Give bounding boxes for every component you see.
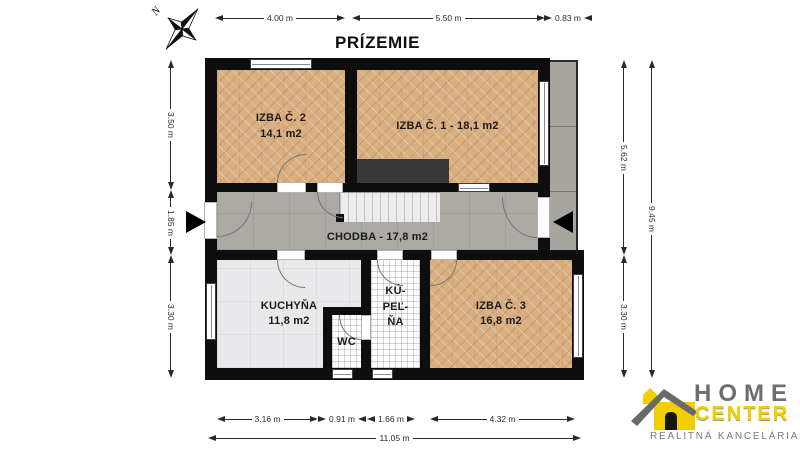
room-chodba-label: CHODBA - 17,8 m2 (217, 228, 538, 248)
north-compass-icon: N (148, 0, 208, 56)
dimension-bottom-1: 3.16 m (217, 413, 318, 425)
window-izba1-right (539, 81, 549, 166)
dimension-bottom-2: 0.91 m (322, 413, 362, 425)
door-izba2 (277, 182, 306, 193)
room-izba2-name: IZBA Č. 2 (256, 111, 306, 126)
room-kupelna-label: KÚ- PEĽ- ŇA (371, 260, 420, 355)
window-izba3-right (573, 274, 583, 358)
wall-bottom (205, 368, 584, 380)
dimension-right-2: 3.30 m (618, 255, 629, 378)
dimension-left-1: 3.50 m (165, 60, 176, 190)
door-izba3 (431, 250, 457, 260)
wall-kitchen-bath-divider (361, 260, 371, 368)
window-wc-bottom (332, 369, 353, 379)
wall-izba1-izba2-divider (345, 70, 357, 183)
room-izba1-name: IZBA Č. 1 - 18,1 m2 (396, 119, 498, 134)
balcony-door-right (537, 197, 550, 238)
room-chodba-name: CHODBA - 17,8 m2 (327, 230, 428, 245)
logo-tagline-text: REALITNÁ KANCELÁRIA (650, 431, 799, 442)
door-kuchyna (277, 250, 305, 260)
dimension-left-2: 1.85 m (165, 190, 176, 255)
entrance-arrow-left-icon (186, 211, 206, 233)
door-wc (361, 315, 371, 340)
room-wc-name: WC (337, 335, 356, 350)
window-izba2-top (250, 59, 312, 69)
dimension-left-3: 3.30 m (165, 255, 176, 378)
room-izba2-area: 14,1 m2 (260, 127, 302, 142)
logo-center-text: CENTER (695, 403, 789, 426)
room-wc-label: WC (332, 333, 361, 353)
dimension-bottom-4: 4.32 m (430, 413, 575, 425)
floorplan-canvas: N PRÍZEMIE (0, 0, 800, 450)
dimension-bottom-3: 1.66 m (367, 413, 421, 425)
room-kupelna-line1: KÚ- (385, 284, 405, 299)
room-izba3-area: 16,8 m2 (480, 314, 522, 329)
dimension-top-1: 4.00 m (215, 12, 345, 24)
dimension-right-total: 9.45 m (646, 60, 657, 378)
wall-bath-izba3-divider (420, 260, 430, 368)
room-kupelna-line2: PEĽ- (383, 300, 409, 315)
dimension-top-3: 0.83 m (544, 12, 592, 24)
room-izba3-label: IZBA Č. 3 16,8 m2 (430, 260, 572, 368)
dimension-right-1: 5.62 m (618, 60, 629, 255)
dimension-bottom-total: 11.05 m (208, 432, 581, 444)
page-title: PRÍZEMIE (205, 33, 550, 53)
room-izba1-label: IZBA Č. 1 - 18,1 m2 (357, 70, 538, 183)
window-kupelna-bottom (372, 369, 393, 379)
homecenter-house-icon (626, 374, 704, 434)
staircase (340, 192, 440, 222)
room-kupelna-line3: ŇA (387, 315, 403, 330)
opening-izba1-chodba (458, 183, 490, 192)
window-kuchyna-left (206, 283, 216, 340)
north-label: N (149, 4, 164, 19)
entrance-arrow-right-icon (553, 211, 573, 233)
door-kupelna (377, 250, 403, 260)
dimension-top-2: 5.50 m (352, 12, 545, 24)
room-izba3-name: IZBA Č. 3 (476, 299, 526, 314)
room-kuchyna-area: 11,8 m2 (268, 314, 309, 329)
room-izba2-label: IZBA Č. 2 14,1 m2 (217, 70, 345, 183)
room-kuchyna-name: KUCHYŇA (261, 299, 317, 314)
